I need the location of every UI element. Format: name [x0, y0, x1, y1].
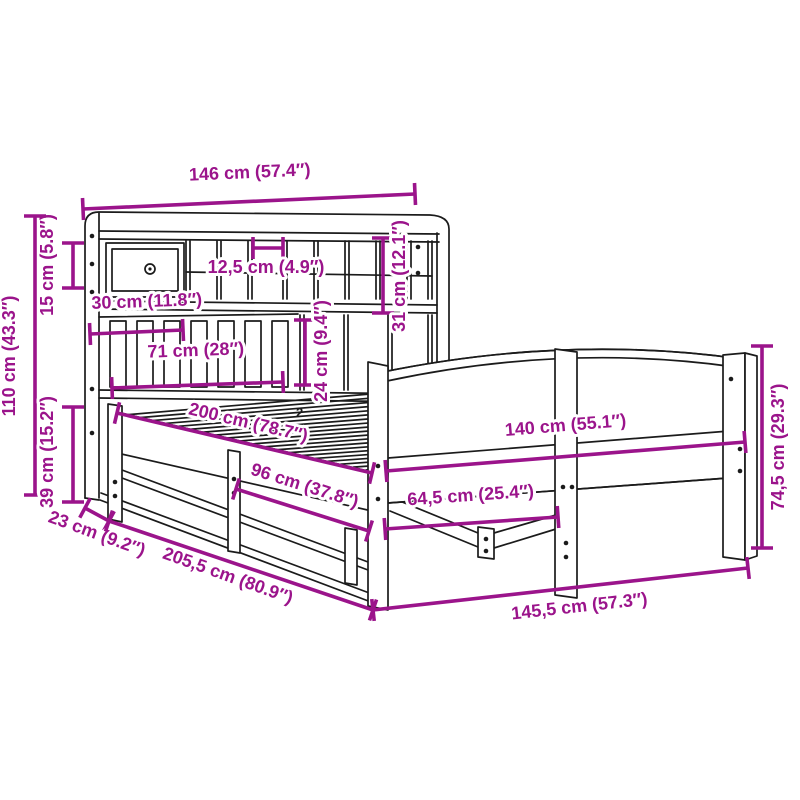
dim-end-cap: [83, 198, 84, 220]
dim-label-cubby-width: 12,5 cm (4.9″): [208, 257, 325, 277]
dim-end-cap: [384, 518, 386, 540]
dim-cubby-width: 12,5 cm (4.9″): [208, 237, 325, 277]
support-leg: [478, 527, 494, 559]
dim-line: [83, 194, 415, 209]
dim-label-footboard-height: 74,5 cm (29.3″): [768, 384, 788, 511]
dim-end-cap: [90, 323, 91, 345]
fence-top-rail: [99, 314, 298, 317]
dim-label-total-height: 110 cm (43.3″): [0, 296, 19, 417]
dim-label-slot-height: 24 cm (9.4″): [311, 300, 331, 402]
dim-cubby-height: 31 cm (12.1″): [372, 220, 409, 332]
drawer-knob-center: [148, 267, 151, 270]
dim-top-shelf-height: 15 cm (5.8″): [37, 214, 84, 316]
dim-label-top-shelf-height: 15 cm (5.8″): [37, 214, 57, 316]
dim-line: [90, 330, 183, 334]
footboard-side-board: [745, 353, 757, 560]
dim-end-cap: [385, 460, 387, 482]
dim-end-cap: [283, 371, 284, 393]
dim-base-height: 39 cm (15.2″): [37, 396, 84, 508]
bed-dimension-diagram: 2 146 cm (57.4″)15 cm: [0, 0, 800, 800]
dim-end-cap: [112, 377, 113, 399]
footboard-left-post: [368, 362, 388, 610]
dim-label-drawer-width: 30 cm (11.8″): [91, 289, 202, 313]
dim-end-cap: [744, 431, 746, 453]
dim-label-base-height: 39 cm (15.2″): [37, 396, 57, 508]
middle-leg: [228, 450, 240, 553]
dim-end-cap: [415, 183, 416, 205]
dim-end-cap: [372, 599, 374, 621]
diagram-canvas: 2 146 cm (57.4″)15 cm: [0, 0, 800, 800]
middle-leg-2: [345, 528, 357, 585]
headboard-left-panel: [85, 213, 99, 500]
footboard: [368, 349, 757, 610]
footboard-right-post: [723, 353, 745, 560]
dim-label-cubby-height: 31 cm (12.1″): [389, 220, 409, 332]
dim-label-lower-shelf-width: 71 cm (28″): [147, 338, 244, 361]
dim-line: [109, 521, 373, 610]
dim-headboard-width: 146 cm (57.4″): [83, 159, 416, 220]
footboard-center-post: [555, 349, 577, 598]
part-mark: 2: [296, 405, 303, 420]
dim-total-length: 205,5 cm (80.9″): [105, 511, 376, 621]
dim-end-cap: [557, 506, 559, 528]
dim-end-cap: [183, 319, 184, 341]
dim-label-headboard-width: 146 cm (57.4″): [189, 159, 311, 184]
dim-end-cap: [747, 557, 749, 579]
